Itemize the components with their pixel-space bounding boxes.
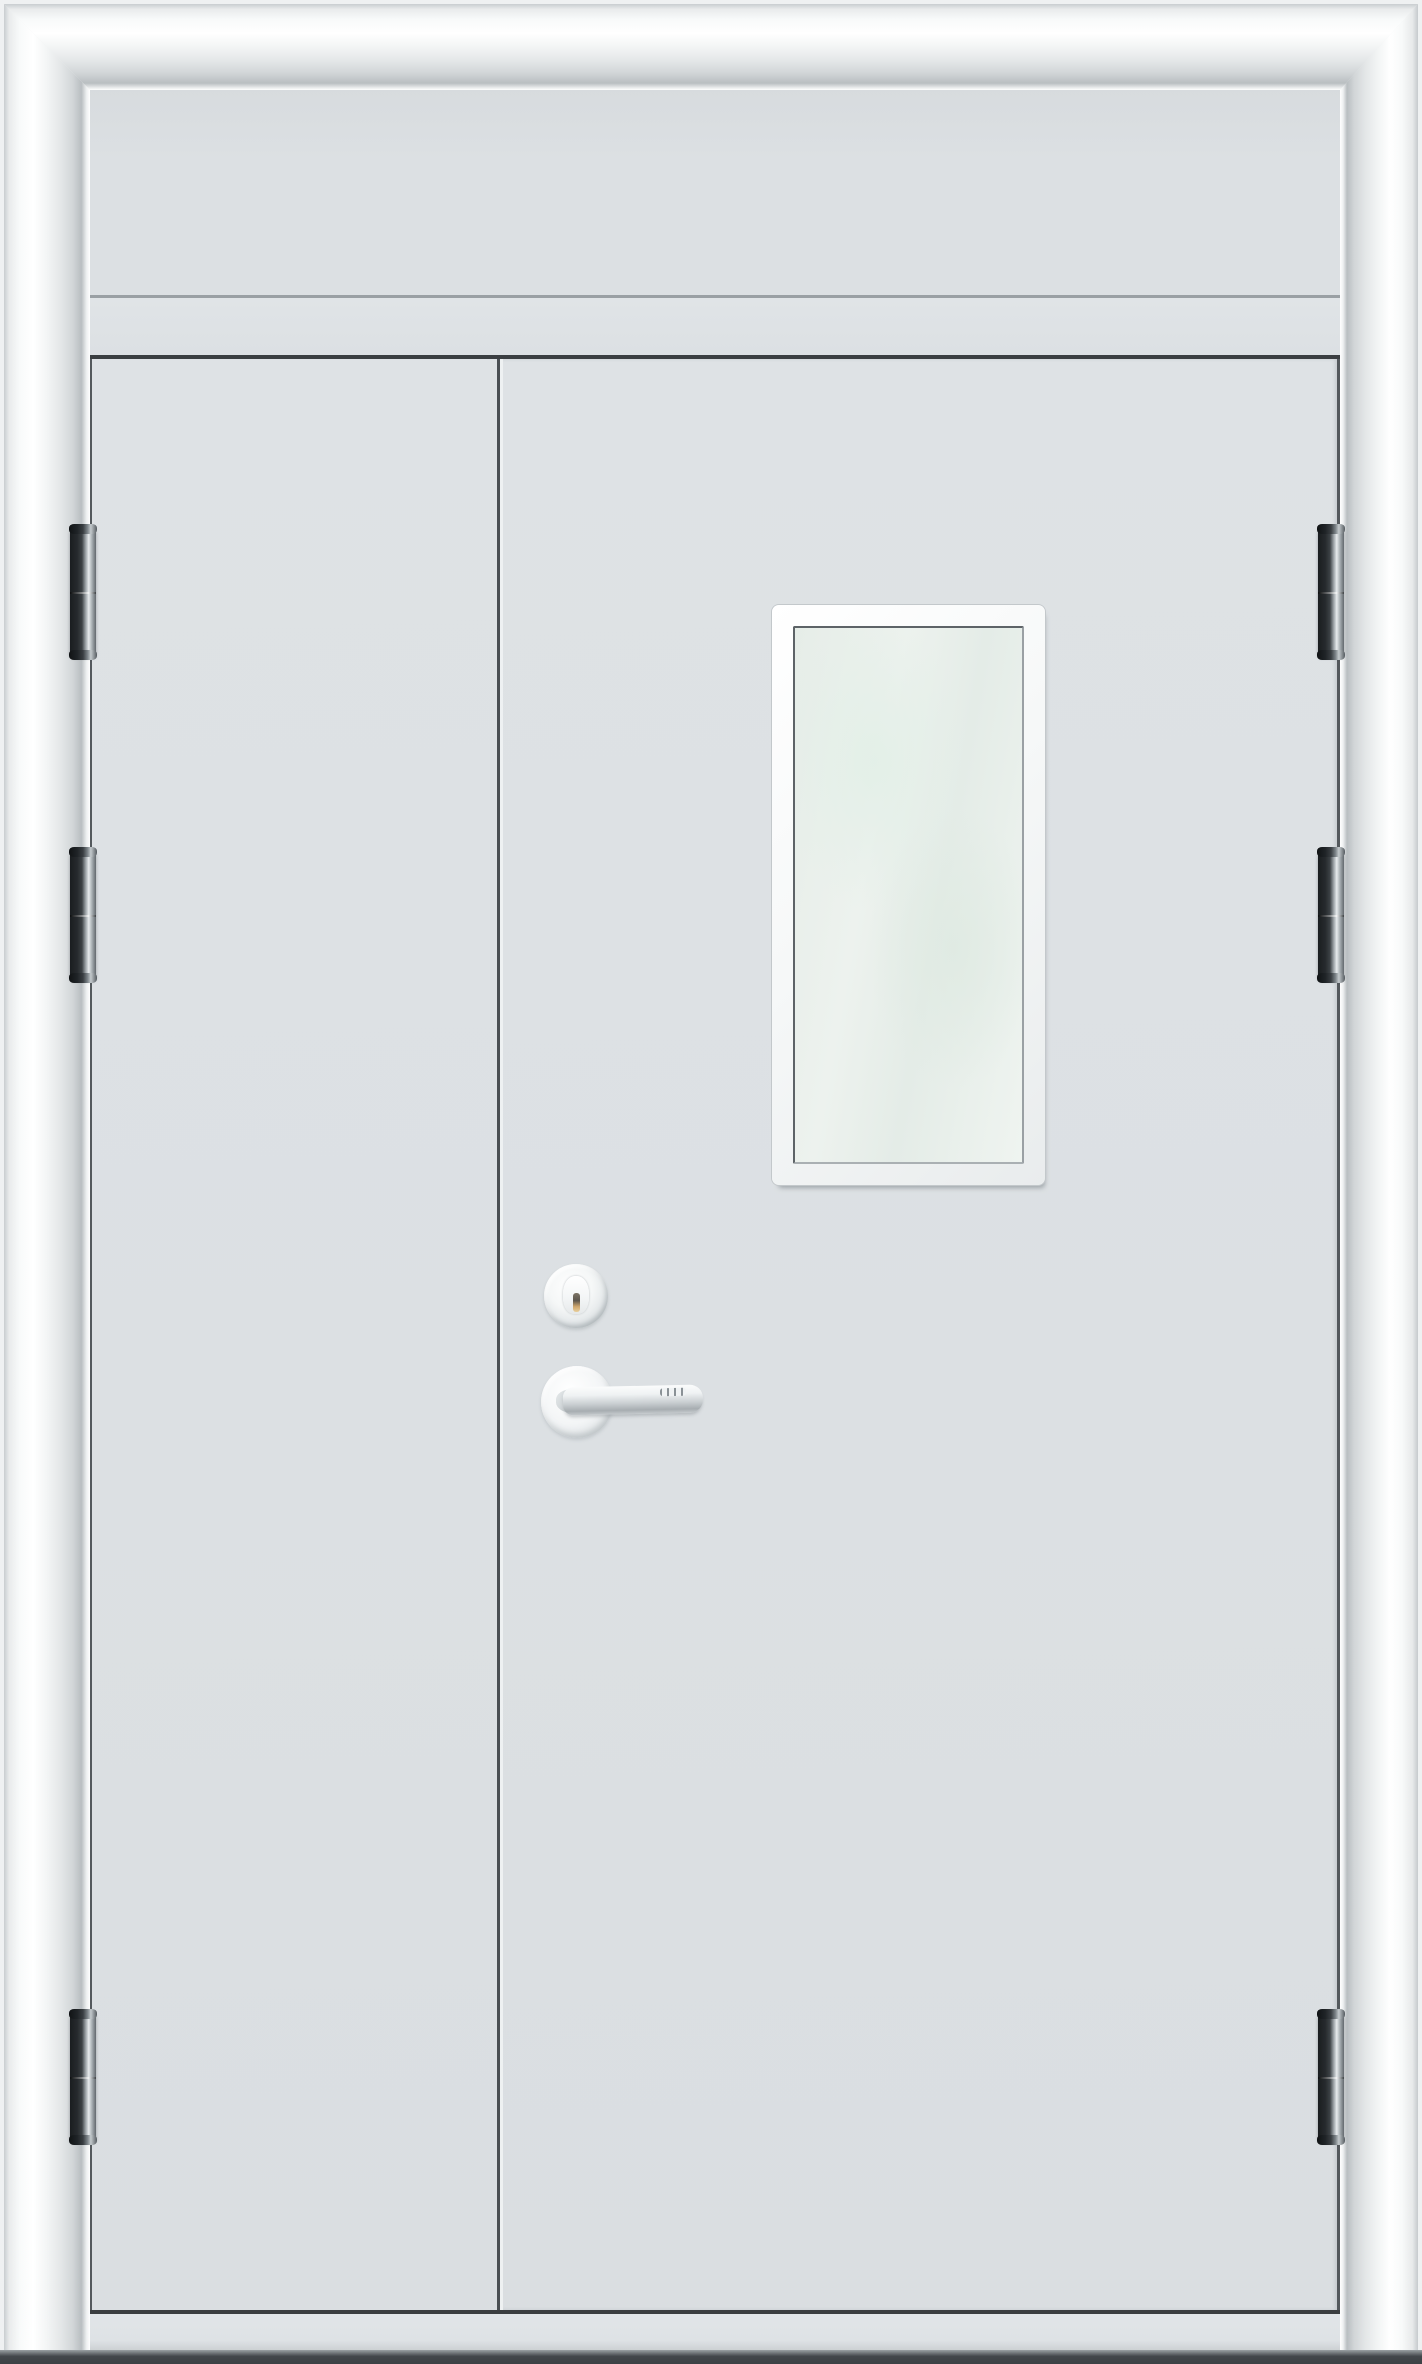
hinge-left-top [70,528,96,656]
hinge-right-upper-middle [1318,851,1344,979]
hinge-knuckle-joint [70,915,96,917]
transom-bottom-rail [90,295,1340,355]
transom-panel [90,88,1340,295]
window-glass [793,626,1024,1164]
lever-handle [541,1366,716,1442]
left-door-leaf [90,359,500,2310]
scene [0,0,1422,2364]
hinge-left-bottom [70,2013,96,2141]
hinge-left-upper-middle [70,851,96,979]
hinge-knuckle-joint [1318,592,1344,594]
threshold [90,2314,1340,2352]
hinge-right-bottom [1318,2013,1344,2141]
cylinder-lock [544,1264,608,1328]
door-assembly [90,355,1340,2314]
floor-shadow [0,2350,1422,2364]
hinge-right-top [1318,528,1344,656]
frame-head [4,4,1418,90]
frame-right-jamb [1340,4,1418,2364]
hinge-knuckle-joint [70,592,96,594]
keyhole [573,1293,580,1312]
vision-window [772,605,1045,1185]
hinge-knuckle-joint [70,2077,96,2079]
hinge-knuckle-joint [1318,2077,1344,2079]
hinge-knuckle-joint [1318,915,1344,917]
lever-tip-notches [660,1388,686,1397]
